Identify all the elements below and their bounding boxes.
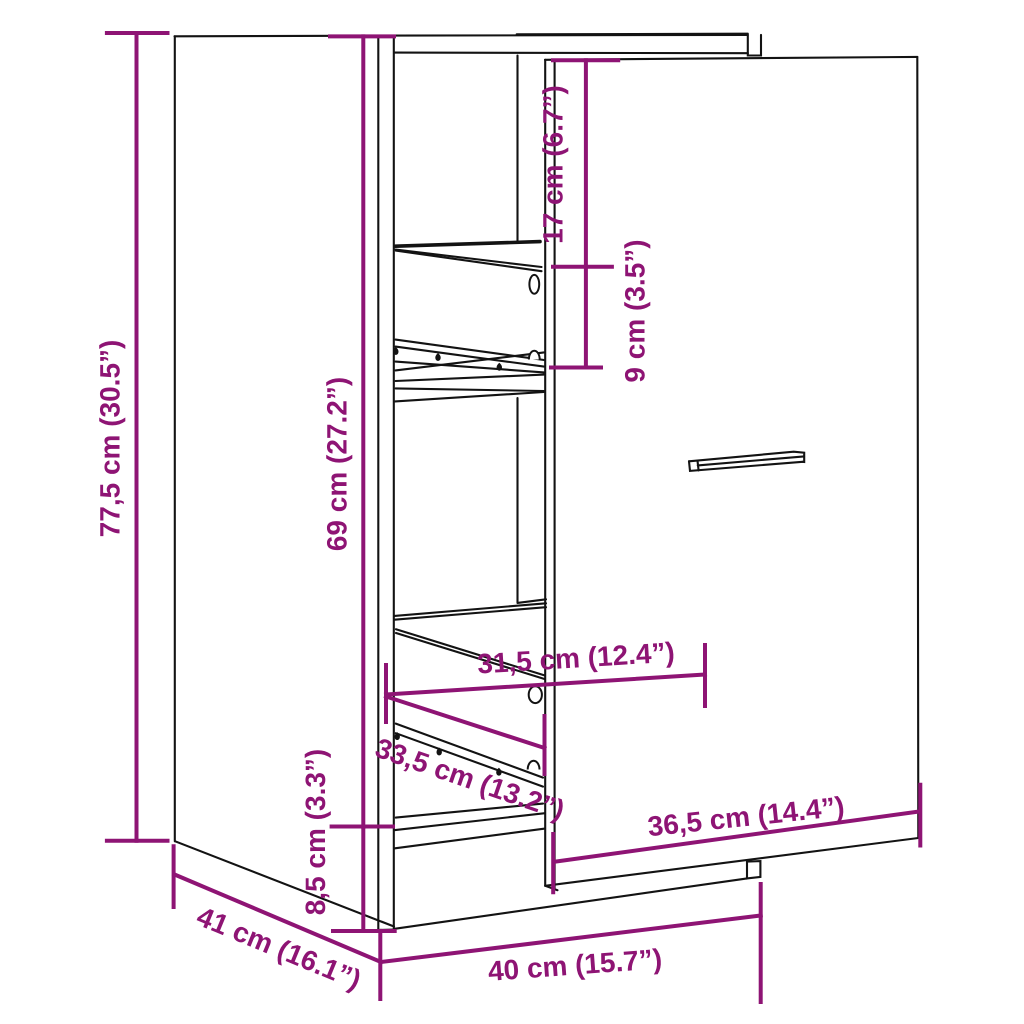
- svg-text:77,5 cm (30.5”): 77,5 cm (30.5”): [95, 340, 126, 538]
- svg-text:9 cm (3.5”): 9 cm (3.5”): [620, 239, 651, 382]
- svg-text:69 cm (27.2”): 69 cm (27.2”): [322, 377, 353, 551]
- svg-text:17 cm (6.7”): 17 cm (6.7”): [538, 85, 569, 244]
- svg-text:8,5 cm (3.3”): 8,5 cm (3.3”): [300, 749, 331, 916]
